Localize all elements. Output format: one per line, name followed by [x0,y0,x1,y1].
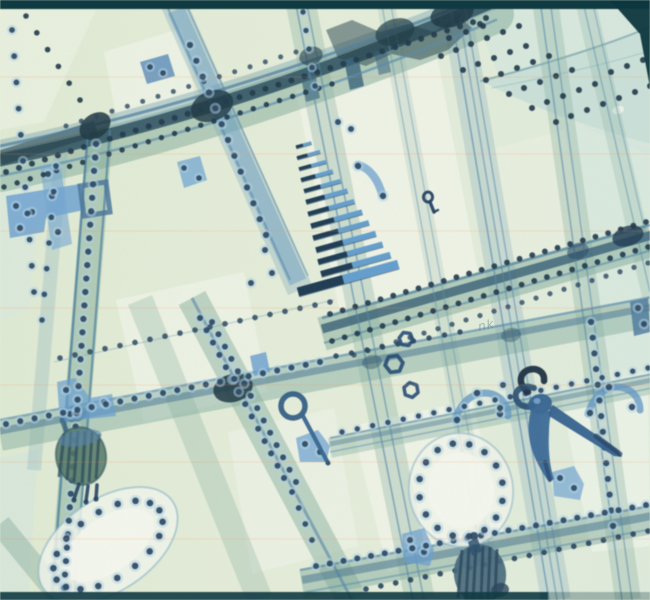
xray-image [0,0,650,600]
film-grain [0,0,650,600]
radiograph: nk [0,0,650,600]
